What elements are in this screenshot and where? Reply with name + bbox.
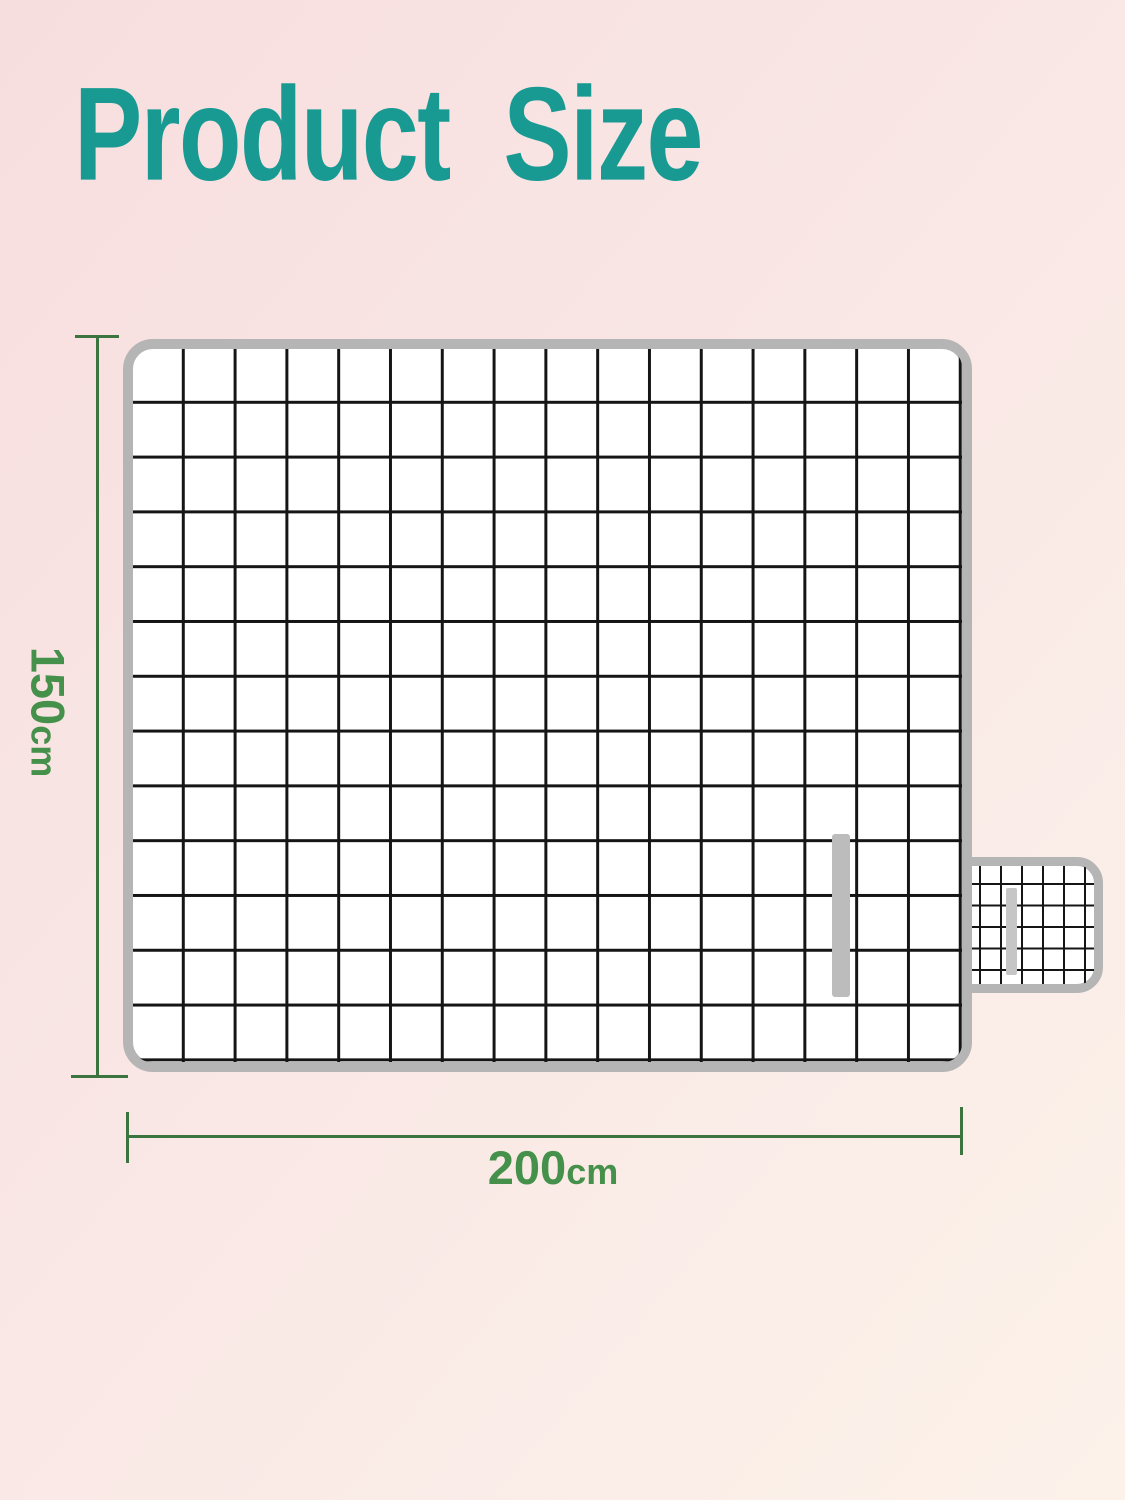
blanket-diagram — [123, 339, 972, 1072]
height-dimension-line — [96, 337, 99, 1078]
side-tab-grid-pattern — [962, 866, 1094, 984]
width-dimension-left-tick — [126, 1112, 129, 1163]
height-value: 150 — [22, 647, 75, 725]
page-title: Product Size — [74, 58, 702, 211]
side-tab-strap — [1006, 888, 1017, 975]
width-dimension-right-tick — [960, 1107, 963, 1155]
height-unit: cm — [24, 725, 65, 777]
height-dimension-bottom-tick — [71, 1075, 128, 1078]
blanket-side-tab — [953, 857, 1103, 993]
width-value: 200 — [488, 1141, 566, 1194]
height-dimension-label: 150cm — [25, 647, 72, 777]
product-size-infographic: Product Size 150cm 200cm — [0, 0, 1125, 1500]
height-dimension-top-tick — [75, 335, 119, 338]
width-dimension-label: 200cm — [488, 1144, 618, 1191]
blanket-velcro-strap — [832, 834, 850, 997]
width-unit: cm — [566, 1151, 618, 1192]
width-dimension-line — [128, 1135, 963, 1138]
